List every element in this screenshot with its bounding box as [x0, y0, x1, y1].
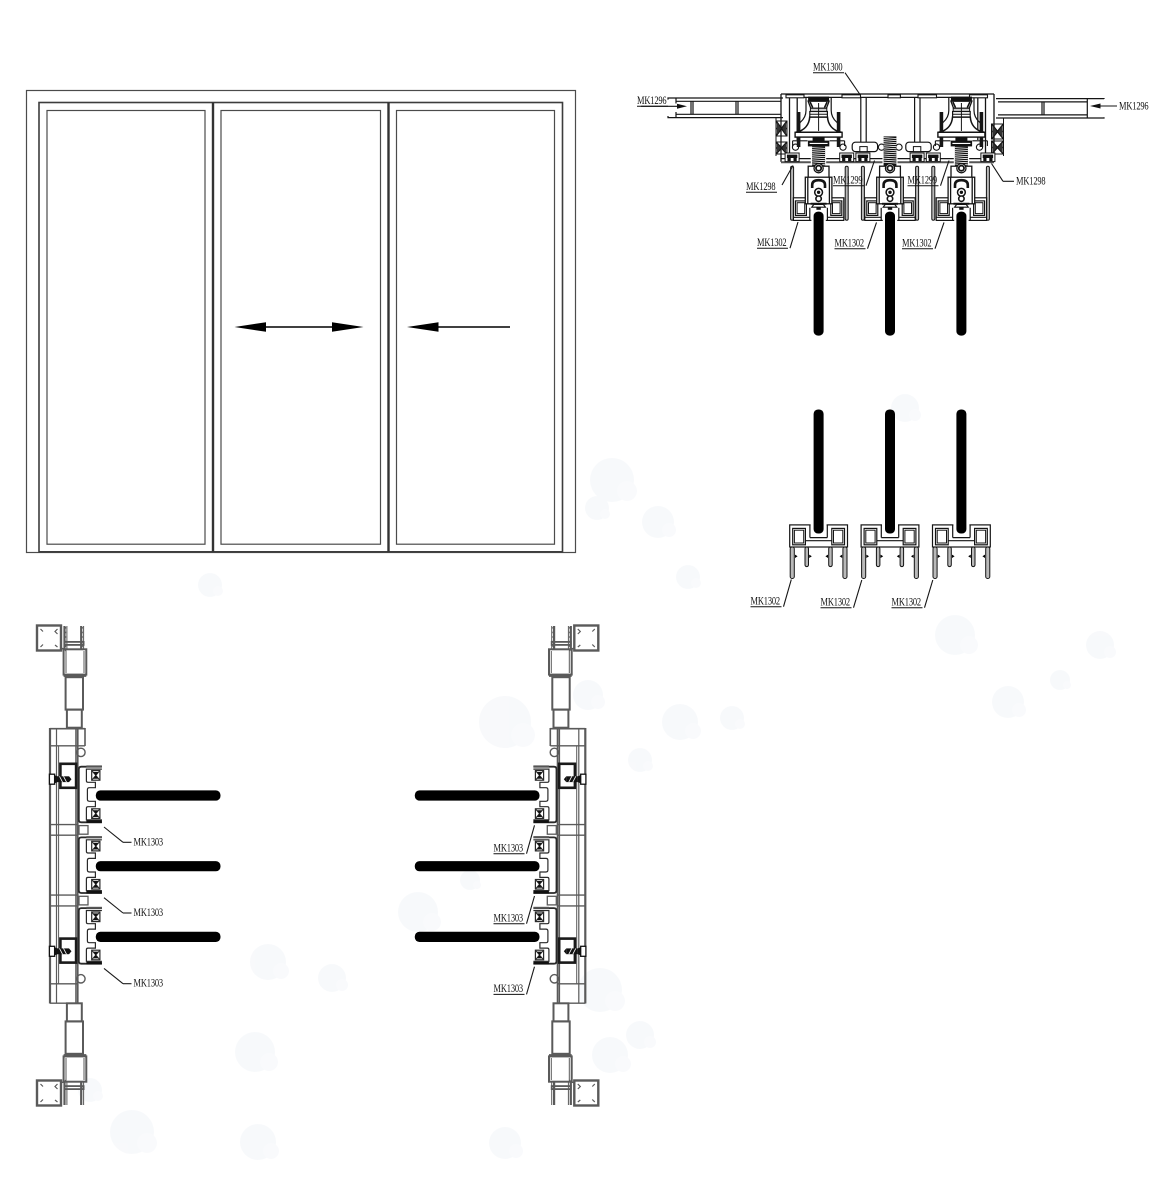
- svg-text:MK1296: MK1296: [1119, 101, 1149, 113]
- svg-text:MK1296: MK1296: [637, 95, 667, 107]
- svg-text:MK1299: MK1299: [908, 175, 938, 187]
- svg-text:MK1303: MK1303: [494, 913, 524, 925]
- svg-text:MK1303: MK1303: [134, 978, 164, 990]
- svg-text:MK1298: MK1298: [746, 181, 776, 193]
- svg-text:MK1299: MK1299: [833, 175, 863, 187]
- svg-text:MK1303: MK1303: [134, 836, 164, 848]
- svg-text:MK1302: MK1302: [821, 597, 851, 609]
- svg-text:MK1302: MK1302: [892, 597, 922, 609]
- svg-text:MK1302: MK1302: [757, 237, 787, 249]
- svg-text:MK1300: MK1300: [813, 62, 843, 74]
- svg-text:MK1303: MK1303: [134, 907, 164, 919]
- svg-text:MK1303: MK1303: [494, 983, 524, 995]
- svg-text:MK1302: MK1302: [902, 238, 932, 250]
- svg-text:MK1302: MK1302: [835, 238, 865, 250]
- svg-text:MK1303: MK1303: [494, 843, 524, 855]
- svg-text:MK1298: MK1298: [1016, 176, 1046, 188]
- svg-text:MK1302: MK1302: [751, 596, 781, 608]
